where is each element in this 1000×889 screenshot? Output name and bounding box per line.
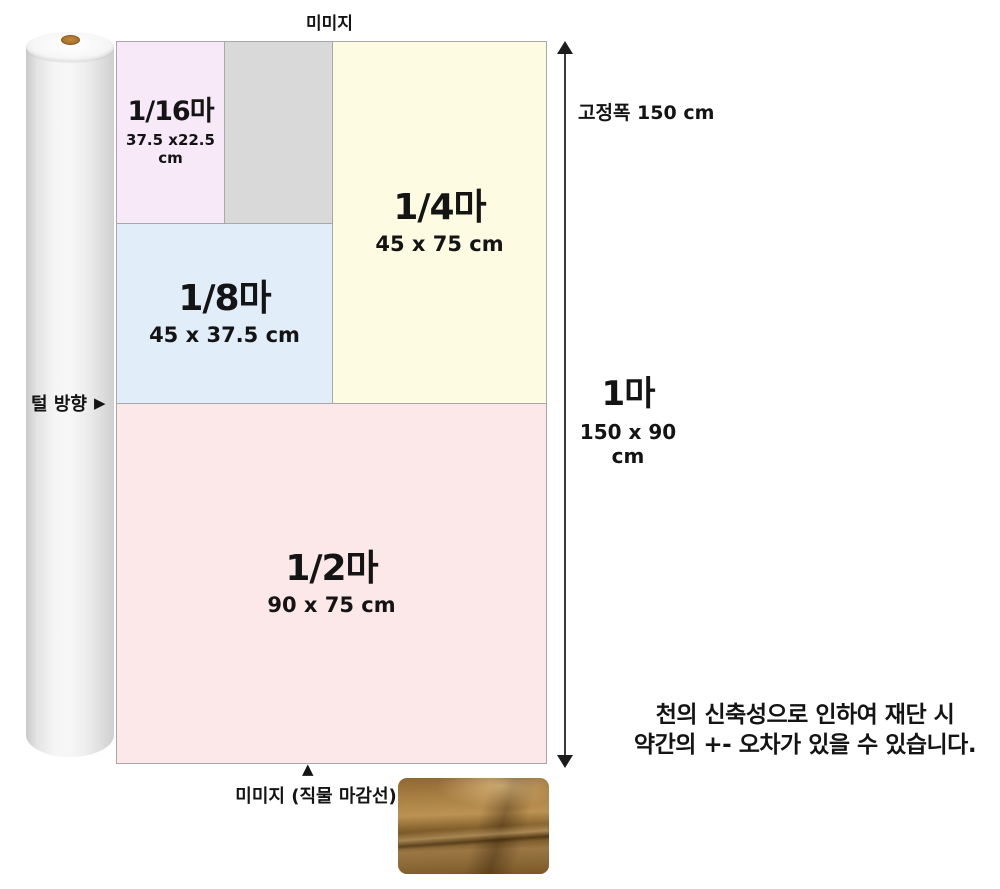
piece-dims: 45 x 75 cm bbox=[375, 232, 503, 256]
fixed-width-label: 고정폭 150 cm bbox=[578, 98, 714, 125]
tolerance-note: 천의 신축성으로 인하여 재단 시 약간의 +- 오차가 있을 수 있습니다. bbox=[610, 700, 1000, 761]
arrowhead-down-icon bbox=[557, 755, 573, 768]
piece-1-8: 1/8마 45 x 37.5 cm bbox=[116, 223, 333, 404]
fabric-cutting-diagram: 미미지 1/16마 37.5 x22.5 cm 1/8마 45 x 37.5 c… bbox=[0, 0, 1000, 889]
right-triangle-icon: ▶ bbox=[94, 396, 106, 411]
bottom-selvage-label: 미미지 (직물 마감선) bbox=[226, 782, 406, 808]
piece-title: 1/8마 bbox=[178, 280, 270, 318]
note-line-1: 천의 신축성으로 인하여 재단 시 bbox=[610, 700, 1000, 730]
piece-1-4: 1/4마 45 x 75 cm bbox=[332, 41, 547, 404]
roll-core-icon bbox=[61, 35, 80, 45]
up-triangle-icon: ▲ bbox=[302, 760, 314, 778]
piece-dims: 37.5 x22.5 cm bbox=[117, 131, 224, 167]
piece-dims: 90 x 75 cm bbox=[267, 593, 395, 617]
nap-direction-label: 털 방향 bbox=[31, 390, 87, 416]
fabric-photo bbox=[398, 778, 549, 874]
piece-1-16: 1/16마 37.5 x22.5 cm bbox=[116, 41, 225, 224]
full-width-title: 1마 bbox=[560, 366, 696, 415]
full-width-dims: 150 x 90 cm bbox=[560, 420, 696, 468]
full-width-block: 1마 150 x 90 cm bbox=[560, 366, 696, 468]
piece-title: 1/2마 bbox=[285, 550, 377, 588]
top-selvage-label: 미미지 bbox=[306, 9, 353, 34]
leftover-area bbox=[224, 41, 333, 224]
piece-title: 1/16마 bbox=[127, 98, 213, 126]
nap-direction: 털 방향 ▶ bbox=[31, 390, 106, 416]
piece-1-2: 1/2마 90 x 75 cm bbox=[116, 403, 547, 764]
piece-dims: 45 x 37.5 cm bbox=[149, 323, 300, 347]
note-line-2: 약간의 +- 오차가 있을 수 있습니다. bbox=[610, 730, 1000, 760]
arrowhead-up-icon bbox=[557, 41, 573, 54]
piece-title: 1/4마 bbox=[393, 189, 485, 227]
